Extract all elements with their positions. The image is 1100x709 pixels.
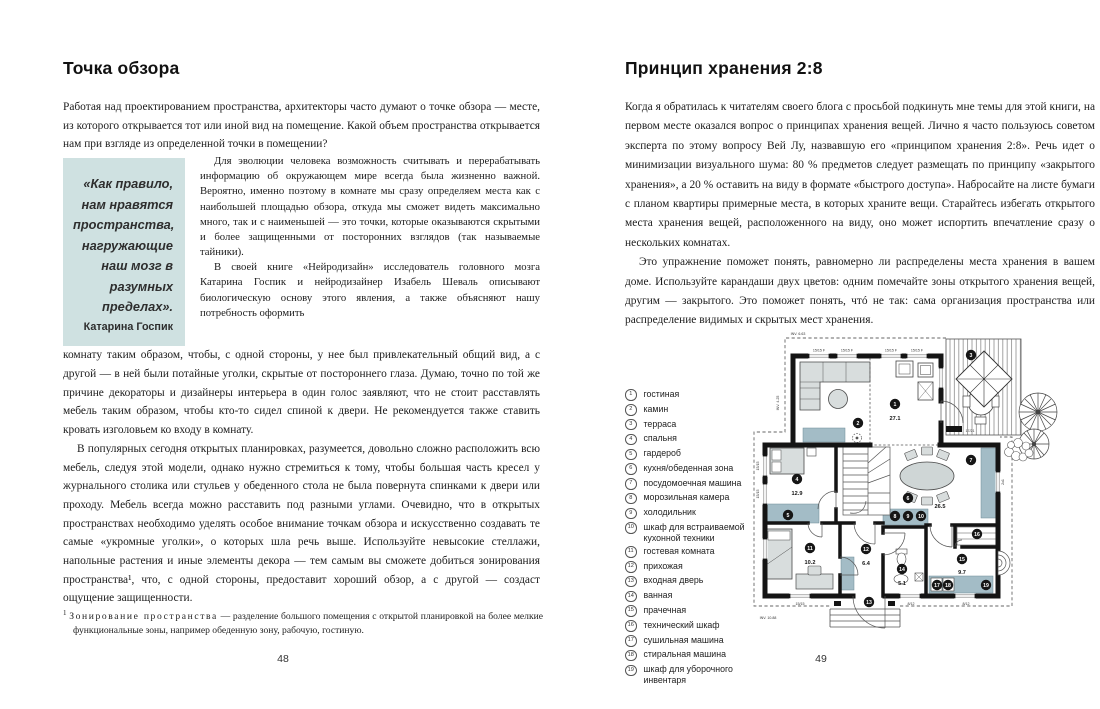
legend-item: 14ванная [625,590,765,602]
svg-text:2: 2 [857,421,860,427]
svg-text:13: 13 [866,600,872,606]
dimension-label: INV. 6.63 [791,332,806,336]
room-marker: 412.9 [792,474,803,497]
dimension-label: INV. 4.25 [776,396,780,411]
legend-number: 4 [625,434,637,446]
svg-text:5: 5 [787,513,790,519]
legend-number: 9 [625,508,637,520]
svg-text:10: 10 [918,514,924,520]
legend-item: 8морозильная камера [625,492,765,504]
paragraph: Когда я обратилась к читателям своего бл… [625,98,1095,253]
dimension-label: 15/15 [756,462,760,471]
legend-label: гостевая комната [644,546,715,557]
legend-item: 12прихожая [625,561,765,573]
legend-number: 17 [625,635,637,647]
legend-label: морозильная камера [644,492,730,503]
dimension-label: 2x1 [1001,479,1005,485]
legend-item: 15прачечная [625,605,765,617]
legend-label: спальня [644,433,677,444]
room-marker: 127.1 [890,399,901,422]
legend-number: 16 [625,620,637,632]
pull-quote-text: «Как правило, нам нравятся пространства,… [73,174,173,318]
legend-label: камин [644,404,669,415]
room-marker: 3 [966,350,976,360]
plan-legend: 1гостиная2камин3терраса4спальня5гардероб… [625,389,765,688]
legend-number: 7 [625,478,637,490]
legend-item: 16технический шкаф [625,620,765,632]
svg-text:17: 17 [934,583,940,589]
sideboard [803,428,845,442]
svg-text:18: 18 [945,583,951,589]
legend-item: 3терраса [625,419,765,431]
kitchen-tall-units [981,448,996,518]
dimension-label: 15/15 [756,490,760,499]
side-column: Для эволюции человека возможность считыв… [200,154,540,321]
armchair [896,361,913,377]
desk-chair [808,566,821,575]
legend-item: 6кухня/обеденная зона [625,463,765,475]
dimension-label: 15/15 [796,602,805,606]
legend-item: 19шкаф для уборочного инвентаря [625,664,765,685]
left-body-text: Работая над проектированием пространства… [63,98,540,608]
legend-label: гардероб [644,448,681,459]
terrace-area [946,339,1021,435]
room-marker: 159.7 [957,554,967,576]
legend-number: 6 [625,463,637,475]
left-page: Точка обзора Работая над проектированием… [63,0,540,709]
svg-text:7: 7 [970,458,973,464]
right-body-text: Когда я обратилась к читателям своего бл… [625,98,1095,331]
room-area-label: 26.5 [935,504,946,510]
legend-item: 13входная дверь [625,575,765,587]
dining-table [900,462,954,490]
svg-text:16: 16 [974,532,980,538]
legend-label: шкаф для уборочного инвентаря [644,664,766,685]
legend-label: терраса [644,419,677,430]
legend-item: 10шкаф для встраиваемой кухонной техники [625,522,765,543]
legend-item: 9холодильник [625,507,765,519]
coffee-table [829,390,848,409]
room-marker: 8 [890,511,900,521]
legend-label: прихожая [644,561,683,572]
svg-text:8: 8 [894,514,897,520]
svg-text:15: 15 [959,557,965,563]
book-spread: Точка обзора Работая над проектированием… [0,0,1100,709]
legend-label: посудомоечная машина [644,478,742,489]
svg-text:3: 3 [970,353,973,359]
legend-number: 2 [625,404,637,416]
page-title-left: Точка обзора [63,58,179,79]
paragraph: Для эволюции человека возможность считыв… [200,154,540,260]
paragraph: Работая над проектированием пространства… [63,98,540,154]
room-area-label: 10.2 [805,560,816,566]
room-marker: 16 [972,529,982,539]
legend-item: 4спальня [625,433,765,445]
svg-text:6: 6 [907,496,910,502]
room-marker: 2 [853,418,863,428]
legend-label: шкаф для встраиваемой кухонной техники [644,522,766,543]
legend-item: 7посудомоечная машина [625,478,765,490]
svg-text:9: 9 [907,514,910,520]
legend-number: 11 [625,546,637,558]
legend-label: технический шкаф [644,620,720,631]
nightstand [807,448,816,456]
room-marker: 1110.2 [805,543,816,566]
room-marker: 18 [943,580,953,590]
svg-text:4: 4 [796,477,799,483]
legend-label: холодильник [644,507,696,518]
legend-number: 12 [625,561,637,573]
pull-quote-author: Катарина Госпик [73,318,173,337]
paragraph: В популярных сегодня открытых планировка… [63,440,540,608]
legend-label: гостиная [644,389,680,400]
dimension-label: 8/12 [908,602,915,606]
legend-label: входная дверь [644,575,704,586]
room-area-label: 9.7 [958,570,966,576]
dimension-label: 15/15 F [841,349,854,353]
dimension-label: 15/15 F [885,349,898,353]
legend-label: кухня/обеденная зона [644,463,734,474]
legend-item: 11гостевая комната [625,546,765,558]
svg-text:14: 14 [899,567,905,573]
legend-number: 19 [625,665,637,677]
legend-number: 13 [625,576,637,588]
right-page: Принцип хранения 2:8 Когда я обратилась … [625,0,1095,709]
paragraph: Это упражнение поможет понять, равномерн… [625,253,1095,331]
room-area-label: 5.1 [898,581,906,587]
legend-item: 2камин [625,404,765,416]
legend-number: 1 [625,389,637,401]
pull-quote-box: «Как правило, нам нравятся пространства,… [63,158,185,346]
legend-number: 8 [625,493,637,505]
room-marker: 7 [966,455,976,465]
desk [796,574,833,589]
footnote: 1 Зонирование пространства — разделение … [63,610,543,638]
room-marker: 10 [916,511,926,521]
page-number-left: 48 [63,653,503,665]
legend-number: 15 [625,605,637,617]
legend-item: 17сушильная машина [625,635,765,647]
legend-item: 1гостиная [625,389,765,401]
footnote-marker: 1 [63,609,67,617]
legend-label: сушильная машина [644,635,724,646]
quote-wrap-row: «Как правило, нам нравятся пространства,… [63,154,540,346]
svg-text:11: 11 [807,546,813,552]
room-marker: 13 [864,597,874,607]
room-area-label: 12.9 [792,491,803,497]
dimension-label: 17/21 [966,429,975,433]
dimension-label: 8/12 [963,602,970,606]
room-marker: 17 [932,580,942,590]
legend-label: прачечная [644,605,687,616]
room-area-label: 6.4 [862,561,871,567]
floor-plan: INV. 6.63INV. 4.25INV. 10.8815/15 F15/15… [750,325,1080,655]
page-title-right: Принцип хранения 2:8 [625,58,823,79]
legend-number: 14 [625,591,637,603]
svg-text:1: 1 [894,402,897,408]
dimension-label: 15/15 F [813,349,826,353]
svg-text:12: 12 [863,547,869,553]
room-marker: 9 [903,511,913,521]
svg-text:19: 19 [983,583,989,589]
dimension-label: 15/15 F [911,349,924,353]
legend-number: 10 [625,522,637,534]
room-marker: 5 [783,510,793,520]
room-marker: 19 [981,580,991,590]
legend-number: 5 [625,449,637,461]
room-marker: 126.4 [861,544,871,567]
paragraph: В своей книге «Нейродизайн» исследовател… [200,260,540,321]
dimension-label: INV. 10.88 [760,616,777,620]
page-number-right: 49 [625,653,1017,665]
staircase [843,447,890,515]
legend-number: 3 [625,419,637,431]
room-area-label: 27.1 [890,416,901,422]
paragraph: комнату таким образом, чтобы, с одной ст… [63,346,540,440]
legend-item: 5гардероб [625,448,765,460]
footnote-term: Зонирование пространства [69,611,218,622]
legend-label: ванная [644,590,673,601]
